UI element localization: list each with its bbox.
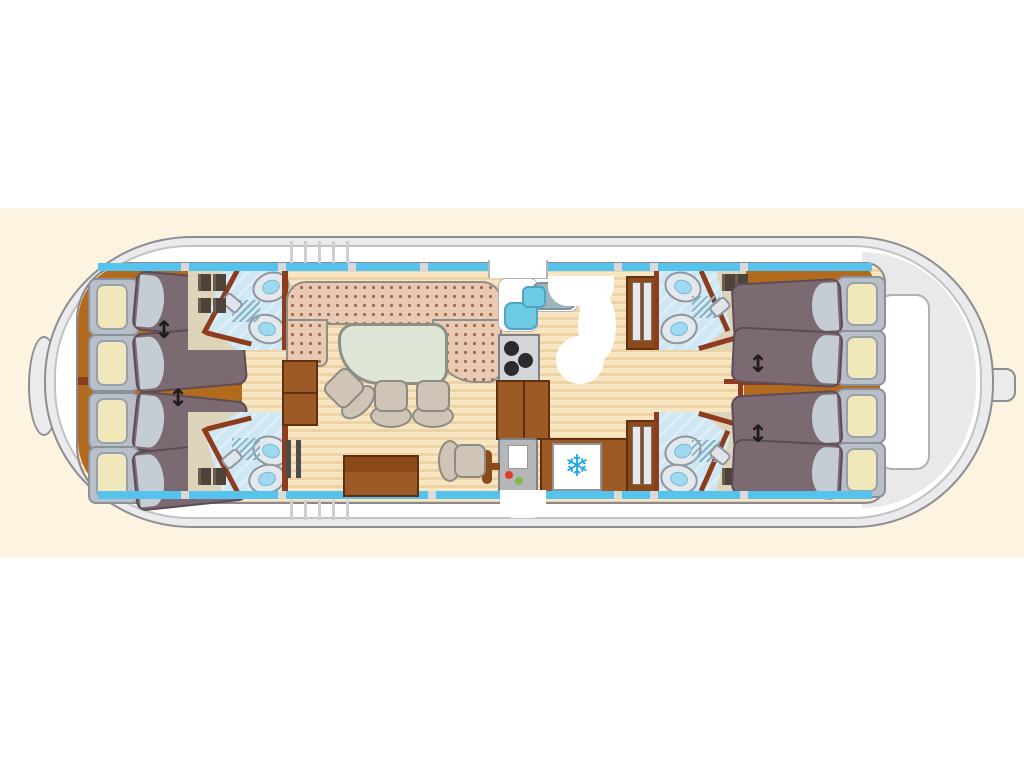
locker-slat xyxy=(632,282,641,341)
toilet-bowl xyxy=(672,277,694,296)
window-gap xyxy=(614,491,622,499)
window-gap xyxy=(650,491,658,499)
duvet-fold xyxy=(811,334,839,383)
helm-console xyxy=(498,438,538,496)
console-button-red xyxy=(505,471,513,479)
console-button-green xyxy=(515,477,523,485)
companionway xyxy=(556,336,604,384)
window-gap xyxy=(614,263,622,271)
helm-seat xyxy=(440,442,486,480)
radiator xyxy=(286,440,291,478)
bed-pillow xyxy=(846,336,878,380)
duvet-fold xyxy=(811,394,839,443)
stove-burner xyxy=(518,353,533,368)
wardrobe-hanger xyxy=(198,298,211,313)
deck-step xyxy=(332,500,335,520)
window-gap xyxy=(181,263,189,271)
duvet-fold xyxy=(811,282,839,331)
galley-cabinet xyxy=(496,380,550,440)
bed-pillow xyxy=(96,398,128,444)
deck-step xyxy=(318,241,321,263)
basin-water xyxy=(668,470,689,488)
duvet-fold xyxy=(135,395,166,449)
deck-step xyxy=(304,241,307,263)
basin-water xyxy=(256,320,277,338)
deck-step xyxy=(346,500,349,520)
stove-burner xyxy=(504,361,519,376)
wardrobe-hanger xyxy=(213,274,226,291)
floorplan-stage: ↕ ↕ ❄ xyxy=(0,0,1024,768)
deck-step xyxy=(290,241,293,263)
window-gap xyxy=(348,263,356,271)
steering-wheel-axle xyxy=(490,463,500,470)
bulkhead xyxy=(654,412,659,498)
window-gap xyxy=(650,263,658,271)
side-table xyxy=(343,455,419,497)
locker-slat xyxy=(643,426,652,485)
wardrobe-hanger xyxy=(198,468,211,485)
toilet-bowl xyxy=(672,441,694,460)
wardrobe-hanger xyxy=(213,468,226,485)
window-gap xyxy=(428,491,436,499)
chair-seat xyxy=(374,380,408,412)
radiator xyxy=(296,440,301,478)
basin-water xyxy=(668,320,689,338)
window-gap xyxy=(278,491,286,499)
deck-step xyxy=(318,500,321,520)
sideboard xyxy=(282,392,318,426)
window-gap xyxy=(278,263,286,271)
toilet-bowl xyxy=(260,277,282,296)
bed-join-arrow: ↕ xyxy=(748,352,768,376)
chair-seat xyxy=(416,380,450,412)
duvet-fold xyxy=(811,446,839,495)
side-door-recess xyxy=(488,260,548,278)
window-gap xyxy=(740,263,748,271)
side-door-landing xyxy=(500,490,546,518)
toilet-bowl xyxy=(260,441,282,460)
basin-water xyxy=(256,470,277,488)
dinette-chair xyxy=(372,380,410,426)
duvet-fold xyxy=(135,453,166,507)
stove-burner xyxy=(504,341,519,356)
snowflake-icon: ❄ xyxy=(564,452,589,482)
wardrobe-hanger xyxy=(198,274,211,291)
deck-step xyxy=(304,500,307,520)
locker-slat xyxy=(632,426,641,485)
chair-seat xyxy=(454,444,486,478)
locker-slat xyxy=(643,282,652,341)
window-gap xyxy=(740,491,748,499)
window-strip-bottom xyxy=(98,491,872,499)
bed-join-arrow: ↕ xyxy=(748,422,768,446)
wardrobe-hanger xyxy=(213,298,226,313)
fridge: ❄ xyxy=(552,443,602,491)
bed-pillow xyxy=(846,282,878,326)
deck-step xyxy=(332,241,335,263)
window-gap xyxy=(420,263,428,271)
stove xyxy=(498,334,540,382)
bed-pillow xyxy=(96,284,128,330)
bed-pillow xyxy=(846,448,878,492)
deck-step xyxy=(346,241,349,263)
bulkhead xyxy=(654,264,659,350)
window-gap xyxy=(181,491,189,499)
galley-sink-faucet xyxy=(522,286,546,308)
side-table-top xyxy=(345,457,417,472)
console-screen xyxy=(508,445,528,469)
sideboard xyxy=(282,360,318,394)
window-strip-top xyxy=(98,263,872,271)
bed-pillow xyxy=(96,340,128,386)
dinette-chair xyxy=(414,380,452,426)
bed-join-arrow: ↕ xyxy=(154,318,174,342)
cabinet-divider xyxy=(523,382,525,438)
bed-pillow xyxy=(846,394,878,438)
bed-join-arrow: ↕ xyxy=(168,386,188,410)
deck-step xyxy=(290,500,293,520)
